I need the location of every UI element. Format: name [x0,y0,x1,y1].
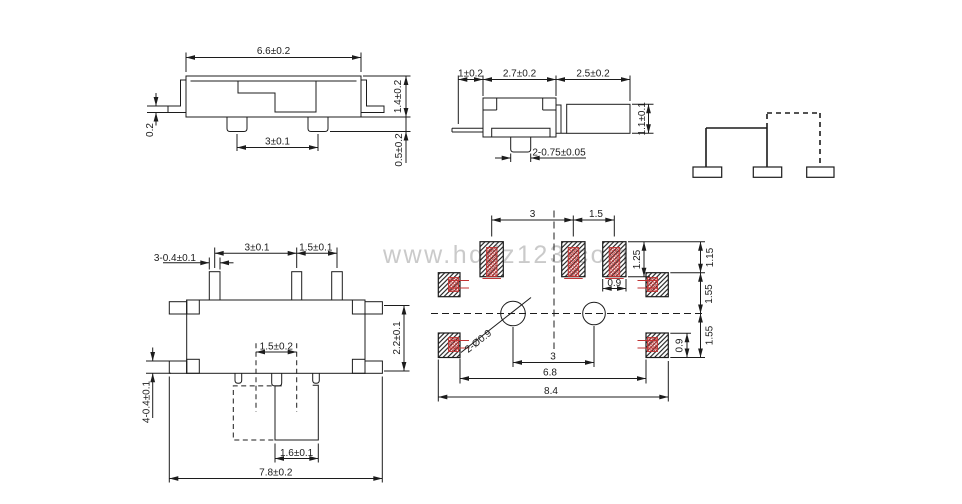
dim-top-pin-pitch-a: 3±0.1 [245,243,270,254]
dim-pcb-pad-width: 0.9 [607,278,621,289]
dim-pcb-side-pad-height: 0.9 [675,338,686,352]
dim-pcb-overall-span: 8.4 [544,386,558,397]
schematic-terminal-2 [753,167,781,177]
circuit-schematic [693,113,834,177]
dim-top-pin-spec: 3-0.4±0.1 [154,253,197,264]
dim-end-lead-length: 1±0.2 [458,69,483,80]
dim-end-pin-spec: 2-0.75±0.05 [532,148,586,159]
dim-top-knob-travel: 1.5±0.2 [260,342,294,353]
side-view-outline [168,76,384,132]
dim-end-knob-length: 2.5±0.2 [576,69,610,80]
dim-top-body-depth: 2.2±0.1 [392,321,403,355]
top-view: 3±0.1 1.5±0.1 3-0.4±0.1 2.2±0.1 1.5±0.2 … [141,243,409,483]
dim-pcb-pad-pitch-a: 3 [530,209,536,220]
knob-alternate-position [233,386,275,440]
dim-end-knob-height: 1.1±0.1 [637,102,648,136]
switch-dimension-drawing: www.hqdz123.com 6.6±0.2 1.4±0.2 0.5 [0,0,962,504]
dim-pcb-inner-span: 6.8 [543,368,557,379]
dim-top-pin-pitch-b: 1.5±0.1 [299,243,333,254]
dim-pcb-gap-lower: 1.55 [705,325,716,345]
dim-side-pin-pitch: 3±0.1 [265,137,290,148]
dim-pcb-pad-length: 1.25 [632,249,643,269]
drawing-canvas: www.hqdz123.com 6.6±0.2 1.4±0.2 0.5 [0,0,962,504]
dim-side-body-height: 1.4±0.2 [393,79,404,113]
dim-pcb-pad-pitch-b: 1.5 [589,209,603,220]
end-view-outline [452,98,630,152]
dim-top-tab-spec: 4-0.4±0.1 [141,380,152,423]
top-view-dimensions [146,248,410,483]
dim-top-overall-width: 7.8±0.2 [259,468,293,479]
dim-end-body-width: 2.7±0.2 [503,69,537,80]
dim-side-lead-thickness: 0.2 [145,123,156,137]
side-view: 6.6±0.2 1.4±0.2 0.5±0.2 3±0.1 0.2 [145,46,411,167]
dim-side-body-width: 6.6±0.2 [257,46,291,57]
dim-top-knob-width: 1.6±0.1 [280,448,314,459]
schematic-terminal-1 [693,167,722,177]
end-view: 1±0.2 2.7±0.2 2.5±0.2 1.1±0.1 2-0.75±0.0… [452,69,654,163]
schematic-terminal-3 [807,167,834,177]
dim-pcb-hole-pitch: 3 [550,352,556,363]
dim-pcb-gap-upper: 1.55 [704,284,715,304]
watermark-text: www.hqdz123.com [382,241,630,269]
top-view-outline [169,272,382,440]
dim-pcb-row-gap: 1.15 [705,247,716,267]
schematic-open-contact [767,113,820,167]
knob-current-position [275,385,318,440]
schematic-closed-contact [706,128,767,167]
pcb-land-pattern: 3 1.5 1.25 1.15 1.55 1.55 0.9 0.9 2-Ø0.9… [431,209,716,402]
dim-pcb-hole-spec: 2-Ø0.9 [463,328,494,356]
dim-side-pin-standoff: 0.5±0.2 [394,133,405,167]
